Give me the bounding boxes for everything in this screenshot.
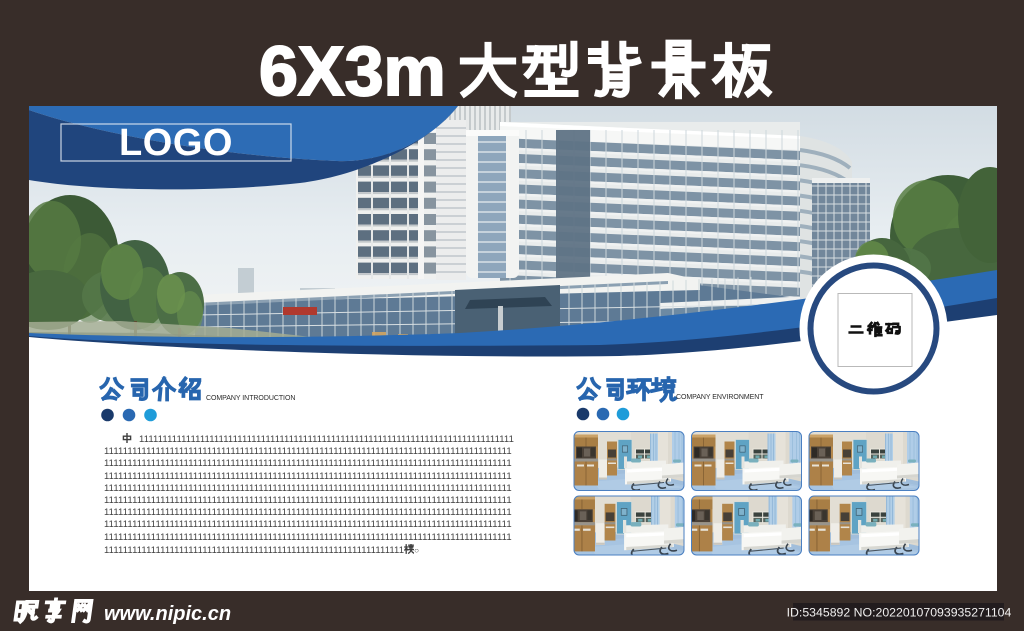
svg-text:COMPANY ENVIRONMENT: COMPANY ENVIRONMENT: [676, 394, 764, 401]
svg-text:COMPANY INTRODUCTION: COMPANY INTRODUCTION: [206, 395, 295, 402]
svg-text:ID:5345892 NO:2022010709393527: ID:5345892 NO:20220107093935271104: [787, 606, 1012, 620]
svg-text:6X3m: 6X3m: [259, 32, 446, 110]
svg-text:www.nipic.cn: www.nipic.cn: [104, 603, 231, 625]
svg-text:LOGO: LOGO: [119, 122, 233, 164]
